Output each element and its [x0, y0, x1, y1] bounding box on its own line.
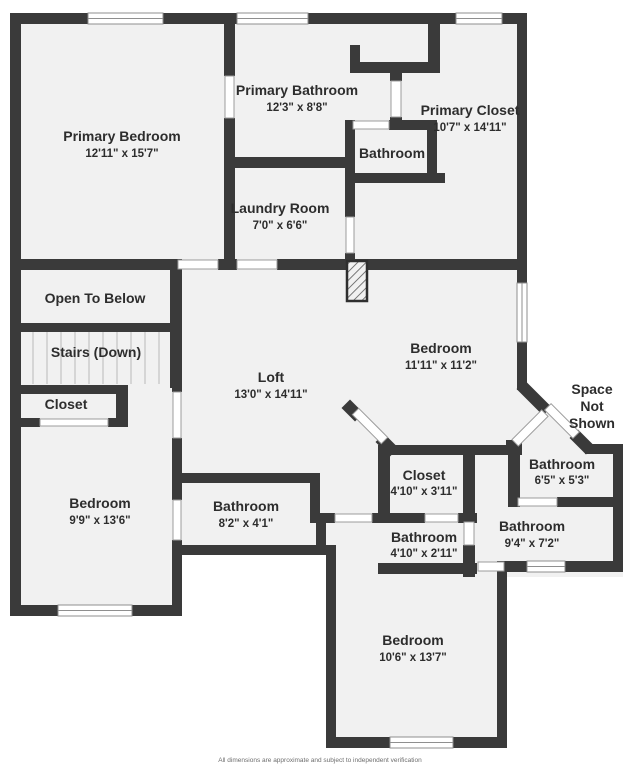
door [353, 121, 389, 129]
door [173, 392, 181, 438]
door [237, 260, 277, 269]
room-dims-loft: 13'0" x 14'11" [234, 389, 307, 401]
room-dims-bedroom-ne: 11'11" x 11'2" [405, 360, 477, 372]
room-dims-bathroom-se: 9'4" x 7'2" [505, 538, 560, 550]
room-label-open-to-below: Open To Below [45, 290, 146, 306]
room-dims-laundry: 7'0" x 6'6" [253, 220, 308, 232]
door [464, 522, 474, 545]
room-label-bathroom-w: Bathroom [213, 498, 279, 514]
room-label-laundry: Laundry Room [231, 200, 330, 216]
room-label-bedroom-w: Bedroom [69, 495, 130, 511]
room-label-primary-closet: Primary Closet [421, 102, 520, 118]
room-label-stairs: Stairs (Down) [51, 344, 141, 360]
disclaimer-text: All dimensions are approximate and subje… [218, 757, 422, 764]
floor-plan: Primary Bedroom 12'11" x 15'7" Primary B… [0, 0, 636, 768]
room-label-closet-s: Closet [403, 467, 446, 483]
floor-area-left [10, 259, 182, 616]
door [40, 419, 108, 426]
door [346, 217, 354, 253]
wall-segment [384, 442, 390, 448]
chimney-hatch [347, 261, 367, 301]
room-label-loft: Loft [258, 369, 285, 385]
room-label-primary-bathroom: Primary Bathroom [236, 82, 358, 98]
room-label-bedroom-s: Bedroom [382, 632, 443, 648]
room-dims-closet-s: 4'10" x 3'11" [391, 486, 458, 498]
door [518, 498, 557, 506]
room-dims-bathroom-w: 8'2" x 4'1" [219, 518, 274, 530]
room-label-bathroom-e: Bathroom [529, 456, 595, 472]
door [178, 260, 218, 269]
floor-areas [10, 13, 623, 748]
space-not-shown-line1: Space [571, 381, 612, 397]
room-dims-bathroom-e: 6'5" x 5'3" [535, 475, 590, 487]
room-label-closet-hall: Closet [45, 396, 88, 412]
room-label-primary-wc: Bathroom [359, 145, 425, 161]
room-dims-bathroom-s: 4'10" x 2'11" [391, 548, 458, 560]
wall-segment [578, 438, 586, 446]
room-dims-primary-bathroom: 12'3" x 8'8" [266, 102, 327, 114]
door [478, 562, 504, 571]
floor-plan-page: Primary Bedroom 12'11" x 15'7" Primary B… [0, 0, 636, 768]
room-label-bathroom-se: Bathroom [499, 518, 565, 534]
room-dims-bedroom-s: 10'6" x 13'7" [379, 652, 447, 664]
door [391, 81, 401, 117]
door [425, 514, 458, 522]
room-dims-bedroom-w: 9'9" x 13'6" [69, 515, 130, 527]
room-dims-primary-bedroom: 12'11" x 15'7" [85, 148, 158, 160]
room-label-primary-bedroom: Primary Bedroom [63, 128, 180, 144]
room-dims-primary-closet: 10'7" x 14'11" [433, 122, 506, 134]
space-not-shown-line2: Not [580, 398, 604, 414]
room-label-bathroom-s: Bathroom [391, 529, 457, 545]
door [335, 514, 372, 522]
door [225, 76, 234, 118]
room-label-bedroom-ne: Bedroom [410, 340, 471, 356]
space-not-shown-line3: Shown [569, 415, 615, 431]
door [173, 500, 181, 540]
